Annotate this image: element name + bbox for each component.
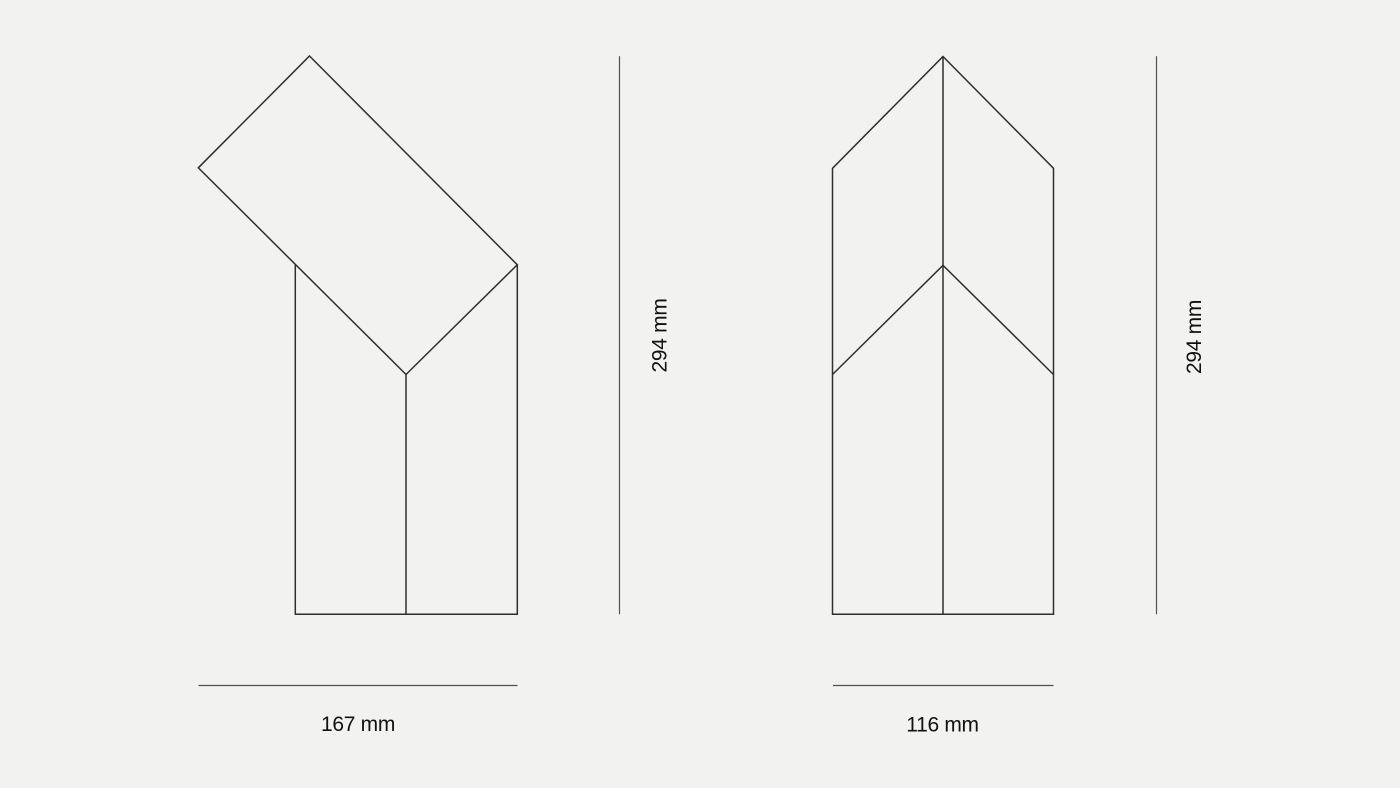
svg-text:167 mm: 167 mm [321,713,395,736]
svg-text:294 mm: 294 mm [649,298,672,372]
svg-text:294 mm: 294 mm [1183,300,1206,374]
svg-text:116 mm: 116 mm [906,714,979,737]
